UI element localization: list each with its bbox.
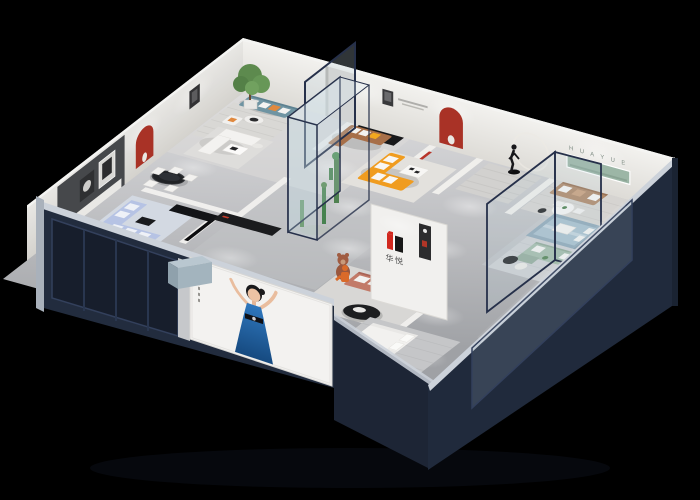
bear-ear [337, 253, 341, 257]
mannequin-body [341, 272, 349, 282]
mannequin-head [342, 265, 348, 271]
tree-pot [244, 100, 257, 109]
showroom-scene: H U A Y U E [0, 0, 700, 500]
bear-ear [345, 253, 349, 257]
logo-gap [394, 235, 396, 250]
statue-head [511, 144, 516, 149]
east-corner-wall-edge [672, 158, 678, 306]
ac-unit-box [168, 256, 212, 289]
west-corner-wall-edge [36, 196, 44, 312]
brand-logo-wall: 华悦 [371, 204, 447, 320]
logo-black-bar [395, 236, 403, 253]
logo-red-bar [387, 233, 393, 250]
wall-art-inner [384, 91, 391, 102]
bear-muzzle [341, 260, 346, 265]
statue-base [508, 170, 520, 175]
tree-foliage [245, 81, 259, 95]
ground-glow [90, 448, 610, 488]
showroom-render: H U A Y U E [0, 0, 700, 500]
case-glass-south [288, 117, 317, 240]
